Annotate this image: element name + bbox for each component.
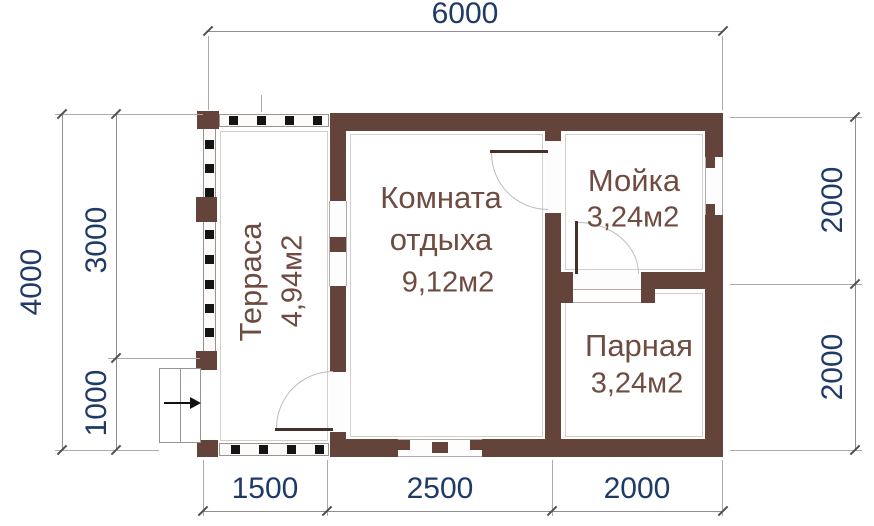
extension-line <box>730 284 862 285</box>
extension-line <box>261 95 262 112</box>
dimension-right-washing: 2000 <box>816 167 850 234</box>
railing-dot <box>205 328 214 337</box>
railing-dot <box>205 140 214 149</box>
railing-dot <box>313 116 322 125</box>
threshold-block <box>559 289 573 303</box>
entrance-step-divider <box>180 368 181 443</box>
wall-top <box>330 113 723 131</box>
extension-line <box>108 358 200 359</box>
window-jamb <box>398 440 410 450</box>
floor-plan: Терраса 4,94м2 Комната отдыха 9,12м2 Мой… <box>0 0 874 526</box>
window-jamb <box>706 204 715 215</box>
railing-dot <box>285 116 294 125</box>
railing-dot <box>315 445 324 454</box>
dimension-right-steam: 2000 <box>816 334 850 401</box>
dimension-left-lower: 1000 <box>80 370 114 437</box>
room-area-terrace: 4,94м2 <box>277 235 310 328</box>
railing-dot <box>231 445 240 454</box>
door-leaf-washing-steam <box>575 221 578 274</box>
entrance-arrow <box>164 402 192 404</box>
dimension-line-left-outer <box>62 114 63 450</box>
room-label-restroom: Комната отдыха <box>341 177 541 261</box>
window-restroom-mullion <box>432 442 448 453</box>
railing-dot <box>257 116 266 125</box>
window-jamb <box>706 157 715 168</box>
extension-line <box>722 460 723 516</box>
extension-line <box>730 117 862 118</box>
extension-line <box>208 36 209 110</box>
dimension-line-bottom <box>203 511 723 512</box>
railing-dot <box>205 280 214 289</box>
room-area-washing: 3,24м2 <box>587 202 680 235</box>
dimension-bottom-steam: 2000 <box>604 472 671 506</box>
steam-inner-outline <box>565 293 703 437</box>
dimension-left-total: 4000 <box>15 249 49 316</box>
room-label-steam: Парная <box>585 328 693 364</box>
window-jamb <box>470 440 482 450</box>
railing-dot <box>205 188 214 197</box>
dimension-top-width: 6000 <box>432 0 499 31</box>
railing-dot <box>205 230 214 239</box>
railing-dot <box>287 445 296 454</box>
railing-dot <box>259 445 268 454</box>
room-area-restroom: 9,12м2 <box>402 267 495 300</box>
railing-dot <box>205 164 214 173</box>
extension-line <box>55 450 159 451</box>
door-opening-washing-steam <box>573 272 641 289</box>
extension-line <box>730 450 862 451</box>
door-leaf-restroom-washing <box>490 150 548 153</box>
room-label-terrace: Терраса <box>233 223 269 342</box>
dimension-line-top <box>208 31 723 32</box>
railing-dot <box>205 255 214 264</box>
room-area-steam: 3,24м2 <box>591 368 684 401</box>
dimension-left-upper: 3000 <box>80 207 114 274</box>
room-label-washing: Мойка <box>588 163 680 199</box>
railing-dot <box>205 304 214 313</box>
dimension-bottom-restroom: 2500 <box>407 472 474 506</box>
threshold-block <box>641 289 655 303</box>
terrace-post-left-mid <box>196 197 217 222</box>
dimension-bottom-terrace: 1500 <box>232 472 299 506</box>
door-leaf-terrace-restroom <box>275 428 333 431</box>
wall-bottom <box>330 439 723 457</box>
dimension-line-left-inner <box>116 114 117 450</box>
railing-dot <box>229 116 238 125</box>
extension-line <box>55 114 203 115</box>
extension-line <box>722 36 723 110</box>
entrance-arrow-head <box>190 397 201 409</box>
